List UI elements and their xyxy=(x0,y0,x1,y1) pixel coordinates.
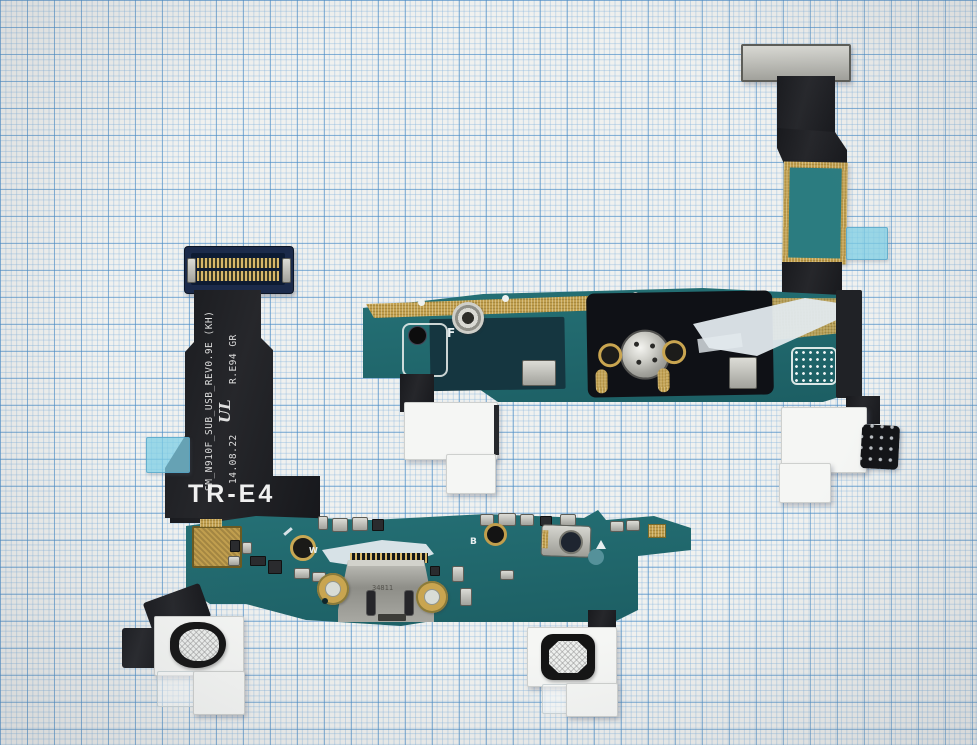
dome-dot xyxy=(634,342,639,347)
flex-wrap-dark-right xyxy=(836,290,862,398)
cyan-pull-tab-left xyxy=(146,437,190,473)
sensor-flex-connector xyxy=(860,424,900,470)
connector-clip-right xyxy=(282,258,291,283)
bracket-screw-left xyxy=(598,343,622,367)
connector-pin-row-bottom xyxy=(197,271,279,281)
smd-component xyxy=(318,516,328,530)
boss-hole xyxy=(559,530,584,555)
smd-component xyxy=(500,570,514,580)
bracket-slot-left xyxy=(595,369,607,393)
mic-port-hole xyxy=(408,326,427,345)
adhesive-pad-right-small xyxy=(779,463,831,503)
solder-hole-1 xyxy=(418,299,425,306)
connector-clip-left xyxy=(187,258,196,283)
cert-marking: R.E94 GR xyxy=(228,334,239,384)
connector-pin-row-top xyxy=(197,258,279,268)
board-letter-b: B xyxy=(470,537,477,547)
dome-dot xyxy=(636,360,641,365)
solder-hole-2 xyxy=(502,295,509,302)
flex-code-label: TR-E4 xyxy=(188,480,275,509)
smd-component xyxy=(230,540,240,552)
coax-connector-2 xyxy=(484,523,507,546)
dome-dot xyxy=(650,343,655,348)
smd-component xyxy=(626,520,640,531)
speaker-mesh-right xyxy=(549,641,587,673)
dome-dot xyxy=(652,357,657,362)
bracket-slot-right xyxy=(657,368,669,392)
usb-slot-right xyxy=(404,590,414,616)
smd-component xyxy=(228,556,240,566)
boss-gold-edge xyxy=(542,530,549,548)
status-led xyxy=(648,524,666,538)
flex-model-marking: SM_N910F_SUB_USB_REV0.9E (KH) xyxy=(204,311,215,491)
usb-top-lip xyxy=(348,560,424,566)
flex-shield-panel xyxy=(788,168,842,259)
via-hole xyxy=(322,598,328,604)
usb-screw-ring-right xyxy=(416,581,448,613)
smd-component xyxy=(250,556,266,566)
bracket-screw-right xyxy=(662,340,686,364)
adhesive-pad-upper-small xyxy=(446,454,496,494)
adhesive-pad-upper-big xyxy=(404,402,498,460)
ul-certification-logo: UL xyxy=(216,399,234,423)
pad-edge-dark xyxy=(494,405,499,455)
board-letter-f: F xyxy=(447,326,455,340)
usb-bottom-opening xyxy=(378,614,406,621)
microphone-left xyxy=(522,360,556,386)
usb-slot-left xyxy=(366,590,376,616)
adhesive-pad-lower-left-2 xyxy=(193,671,245,715)
smd-component xyxy=(610,521,624,532)
flex-date-marking: 14.08.22 xyxy=(228,434,239,484)
teal-pad-circle xyxy=(588,549,604,565)
smd-component xyxy=(242,542,252,554)
smd-component xyxy=(460,588,472,606)
smd-component xyxy=(352,517,368,531)
flex-ribbon-right-upper xyxy=(777,76,835,136)
smd-component xyxy=(520,514,534,526)
silkscreen-triangle xyxy=(596,540,606,549)
mic-mesh-left xyxy=(179,629,219,661)
smd-component xyxy=(372,519,384,531)
smd-component xyxy=(452,566,464,582)
graph-paper-background: SM_N910F_SUB_USB_REV0.9E (KH) 14.08.22 U… xyxy=(0,0,977,745)
smd-component xyxy=(430,566,440,576)
screw-hole-upper xyxy=(452,302,484,334)
screw-hole-center xyxy=(424,589,440,605)
mic-gasket-dotted-right xyxy=(791,347,837,385)
microphone-right xyxy=(729,357,757,389)
rf-shield-tab xyxy=(200,519,222,527)
adhesive-pad-lower-right-2 xyxy=(566,683,618,717)
smd-component xyxy=(294,568,310,579)
smd-component xyxy=(268,560,282,574)
smd-component xyxy=(332,518,348,532)
metal-boss xyxy=(540,524,591,558)
screw-hole-center xyxy=(325,581,341,597)
adhesive-tape-left xyxy=(157,671,197,707)
board-letter-w: W xyxy=(309,546,318,555)
cyan-pull-tab-right xyxy=(846,227,888,260)
